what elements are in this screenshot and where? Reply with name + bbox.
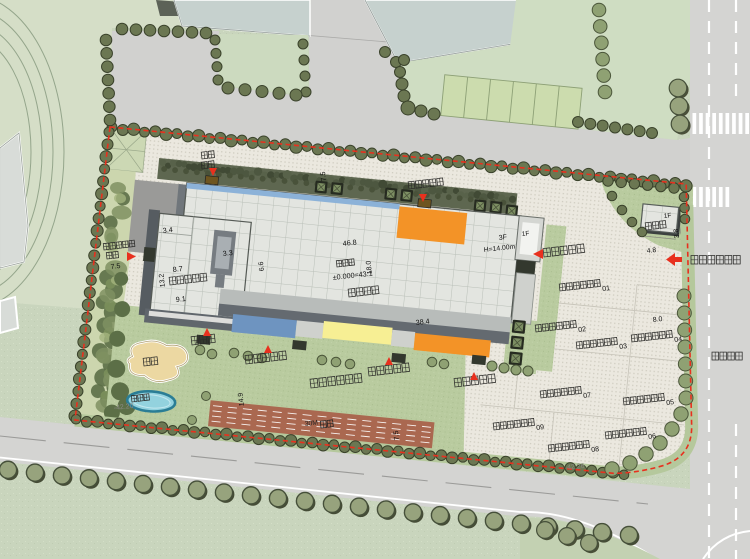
- svg-text:1F: 1F: [521, 230, 529, 238]
- svg-text:4.8: 4.8: [646, 247, 656, 255]
- svg-text:05: 05: [666, 399, 675, 407]
- svg-text:09: 09: [536, 424, 545, 432]
- svg-text:7.5: 7.5: [110, 263, 121, 271]
- svg-text:07: 07: [583, 392, 592, 400]
- svg-text:04: 04: [674, 336, 683, 344]
- svg-text:8.0: 8.0: [652, 316, 663, 324]
- svg-text:08: 08: [591, 446, 600, 454]
- svg-text:46.8: 46.8: [342, 237, 357, 248]
- svg-text:6.6: 6.6: [258, 261, 266, 272]
- svg-text:9.1: 9.1: [175, 294, 186, 304]
- svg-text:02: 02: [578, 326, 587, 334]
- svg-text:03: 03: [619, 343, 628, 351]
- svg-text:3.8: 3.8: [673, 228, 681, 238]
- svg-text:3.4: 3.4: [162, 225, 173, 235]
- svg-text:1F: 1F: [663, 212, 671, 220]
- svg-text:7.5: 7.5: [393, 430, 401, 441]
- svg-text:01: 01: [602, 285, 611, 293]
- svg-text:38.4: 38.4: [415, 316, 430, 327]
- svg-text:06: 06: [648, 433, 657, 441]
- svg-text:8.7: 8.7: [172, 264, 183, 274]
- svg-text:3.3: 3.3: [222, 248, 233, 258]
- svg-text:3F: 3F: [498, 234, 507, 242]
- svg-text:7.5: 7.5: [320, 171, 328, 182]
